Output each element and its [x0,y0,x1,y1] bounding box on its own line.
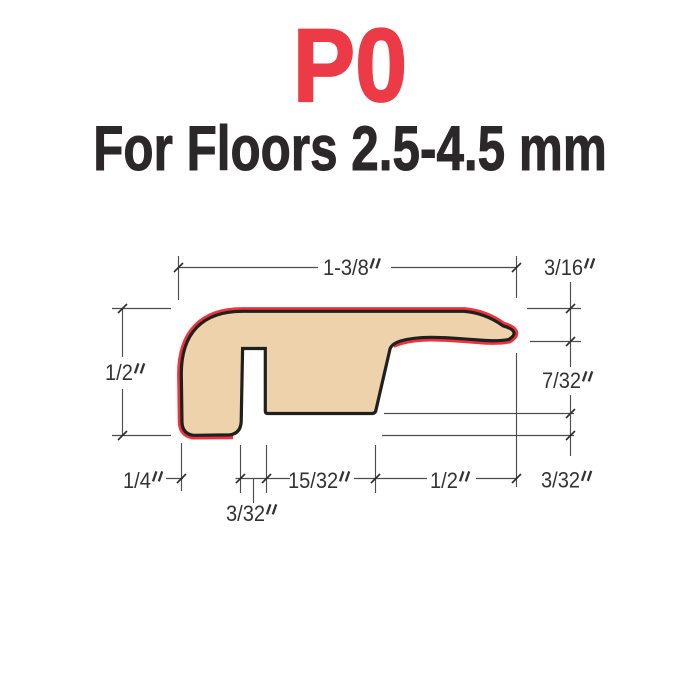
svg-text:15/32: 15/32 [288,469,338,493]
svg-text:1/2: 1/2 [105,361,133,385]
svg-text:7/32: 7/32 [542,369,581,393]
svg-text:P0: P0 [293,6,407,123]
svg-text:3/32: 3/32 [226,502,265,526]
svg-text:For Floors 2.5-4.5 mm: For Floors 2.5-4.5 mm [93,113,607,183]
svg-text:1/2: 1/2 [430,469,458,493]
svg-text:1-3/8: 1-3/8 [323,256,369,280]
svg-text:3/32: 3/32 [541,469,580,493]
svg-text:1/4: 1/4 [123,469,151,493]
svg-text:3/16: 3/16 [544,256,583,280]
